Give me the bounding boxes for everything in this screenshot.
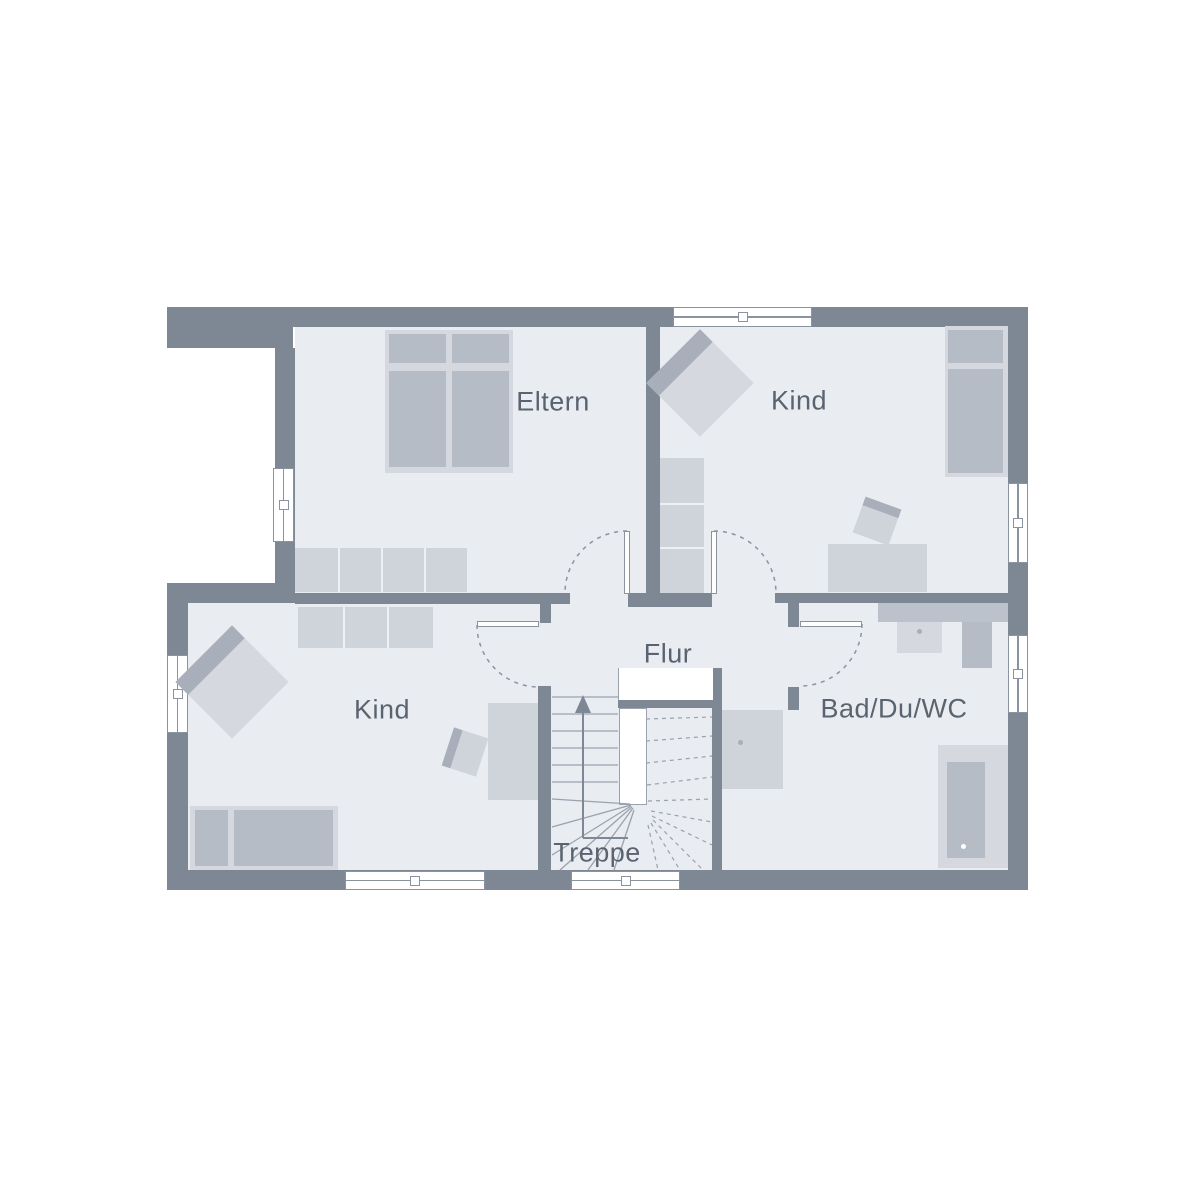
pillow [195,810,228,866]
vanity-counter [878,603,1008,622]
pillow [452,334,509,363]
wall-bad-stub-south [788,687,799,710]
bathtub [947,762,985,858]
wall-stair-north-bar [618,700,712,708]
floor-plan: Eltern Kind Kind Flur Bad/Du/WC Treppe [0,0,1200,1200]
stairwell-void [619,708,647,805]
wall-divider-eltern-kind [646,327,660,593]
wall-stair-west [538,686,551,870]
window-kind-lower-south [345,871,485,890]
window-kind-lower-west [167,655,188,733]
door-bad [800,621,862,627]
wardrobe-eltern [295,548,467,592]
door-eltern [624,531,630,594]
window-eltern-west [273,468,294,542]
window-top-kind [673,307,812,327]
wall-south-kind-upper [775,593,1008,603]
wardrobe-kind-lower [298,607,433,648]
bathtub-drain [961,844,966,849]
wardrobe-kind-upper [660,458,704,593]
wall-top [167,307,1028,327]
shower [722,710,783,789]
pillow [948,330,1003,363]
window-kind-upper-east [1008,483,1028,563]
wall-stair-east [712,668,722,870]
window-bad-east [1008,635,1028,713]
door-kind-upper [711,531,717,594]
wall-top-left-block [167,327,293,348]
wall-bad-stub-north [788,603,799,627]
wall-south-eltern [295,593,570,604]
single-bed-kind-lower [190,806,338,870]
window-stairs-south [571,871,680,890]
mattress [948,369,1003,473]
wall-east [1008,307,1028,890]
room-label-kind-lower: Kind [354,695,410,726]
wall-stub-kind-lower [540,603,551,623]
room-label-bad: Bad/Du/WC [820,694,967,725]
mattress [389,371,446,467]
room-label-kind-upper: Kind [771,386,827,417]
mattress [234,810,333,866]
stair-opening-strip [618,668,713,700]
mattress [452,371,509,467]
double-bed [385,330,513,473]
wall-west-lower [167,583,188,890]
wc-toilet [962,622,992,668]
single-bed-kind-upper [945,326,1008,477]
pillow [389,334,446,363]
room-label-eltern: Eltern [516,387,590,418]
room-label-flur: Flur [644,639,693,670]
desk-kind-upper [828,544,927,592]
door-kind-lower [477,621,539,627]
washbasin [897,622,942,653]
shower-drain [738,740,743,745]
desk-kind-lower [488,703,538,800]
washbasin-drain [917,629,922,634]
wall-center-stub [628,593,712,607]
room-label-treppe: Treppe [553,838,641,869]
